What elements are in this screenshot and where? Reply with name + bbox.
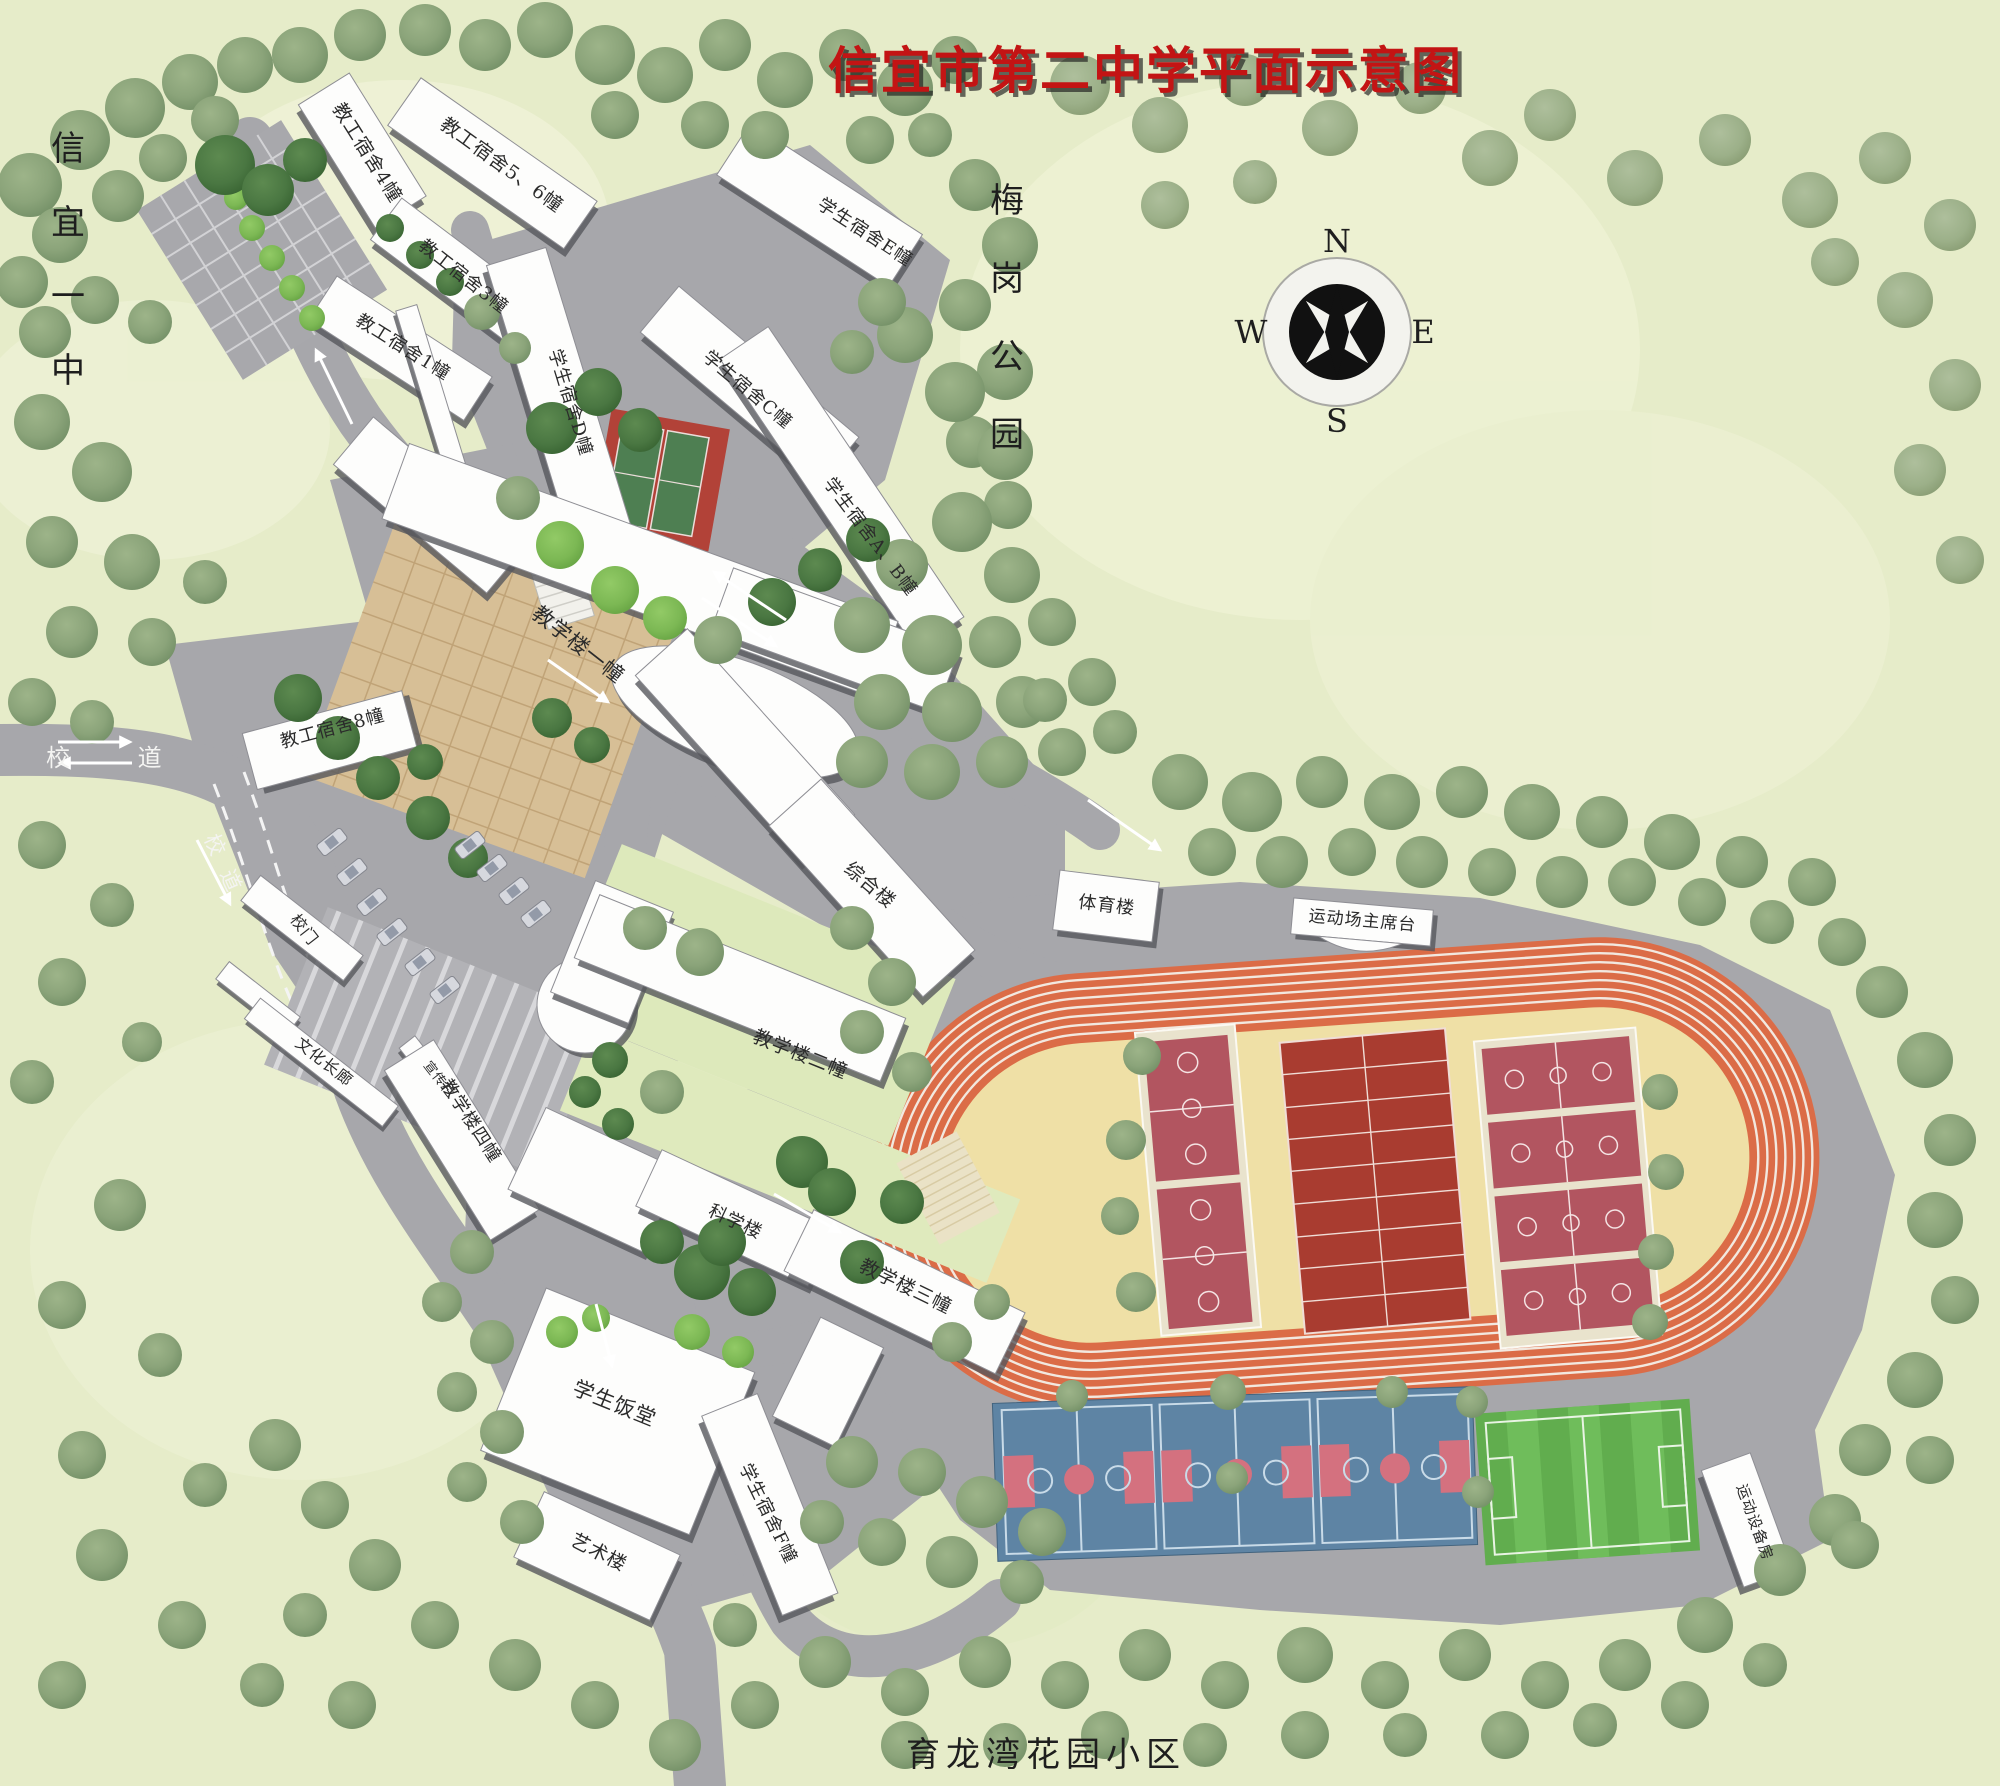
svg-text:一: 一 — [51, 277, 85, 317]
compass-s: S — [1326, 402, 1348, 440]
svg-text:梅: 梅 — [990, 181, 1024, 221]
svg-text:园: 园 — [990, 415, 1024, 455]
svg-text:岗: 岗 — [990, 259, 1024, 299]
compass-n: N — [1323, 222, 1351, 260]
green-pitch — [1475, 1399, 1700, 1566]
svg-text:公: 公 — [990, 337, 1024, 377]
compass-w: W — [1235, 313, 1268, 351]
compass-e: E — [1411, 313, 1434, 351]
campus-map: 教工宿舍4幢 教工宿舍5、6幢 教工宿舍3幢 教工宿舍1幢 学生宿舍D幢 学生宿… — [0, 0, 2000, 1786]
svg-text:信: 信 — [51, 129, 85, 169]
neighbor-label-bottom: 育龙湾花园小区 — [906, 1735, 1186, 1775]
map-title: 信宜市第二中学平面示意图 信宜市第二中学平面示意图 — [828, 41, 1468, 104]
infield-volleyball-center — [1280, 1028, 1471, 1333]
page-title: 信宜市第二中学平面示意图 — [828, 41, 1464, 100]
svg-text:宜: 宜 — [51, 203, 85, 243]
label-road-west: 校 道 — [46, 744, 192, 772]
campus-map-canvas: 教工宿舍4幢 教工宿舍5、6幢 教工宿舍3幢 教工宿舍1幢 学生宿舍D幢 学生宿… — [0, 0, 2000, 1786]
svg-text:中: 中 — [51, 351, 85, 391]
infield-basketball-east — [1474, 1028, 1662, 1349]
